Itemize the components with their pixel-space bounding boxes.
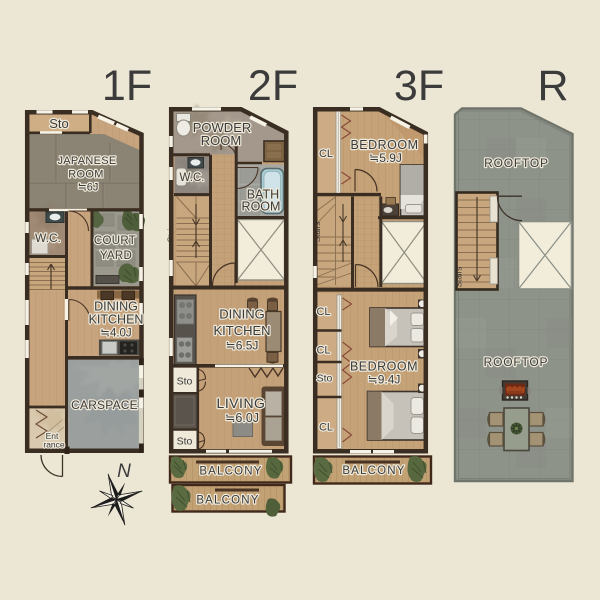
svg-text:LIVING: LIVING [217,395,266,411]
svg-text:CL: CL [319,148,333,160]
svg-text:KITCHEN: KITCHEN [89,313,144,327]
svg-text:1F: 1F [102,62,152,110]
svg-text:DINING: DINING [219,307,265,322]
svg-text:N: N [117,461,131,482]
svg-text:Sto: Sto [317,373,333,385]
svg-text:ROOM: ROOM [201,133,241,148]
svg-text:W.C.: W.C. [180,172,205,184]
svg-text:Sto: Sto [49,116,69,131]
svg-text:Sto: Sto [177,436,193,448]
svg-text:rance: rance [43,440,65,450]
svg-text:≒6.0J: ≒6.0J [225,411,259,425]
svg-text:DINING: DINING [94,300,138,314]
svg-text:R: R [537,62,568,110]
svg-text:≒9.4J: ≒9.4J [368,373,401,387]
svg-text:2F: 2F [248,62,298,110]
svg-text:3F: 3F [394,62,444,110]
svg-text:≒6J: ≒6J [78,182,99,194]
svg-text:JAPANESE: JAPANESE [57,155,116,167]
svg-text:ROOM: ROOM [68,169,103,181]
svg-text:BALCONY: BALCONY [196,495,259,507]
svg-text:BALCONY: BALCONY [342,465,405,477]
svg-text:BEDROOM: BEDROOM [350,360,418,374]
svg-text:COURT: COURT [94,235,136,247]
svg-text:ROOFTOP: ROOFTOP [484,355,549,369]
svg-text:YARD: YARD [100,250,132,262]
svg-text:ROOFTOP: ROOFTOP [484,156,549,170]
svg-text:CL: CL [316,345,330,357]
svg-text:BEDROOM: BEDROOM [350,138,418,152]
svg-text:ROOM: ROOM [242,200,281,214]
svg-text:CARSPACE: CARSPACE [71,398,138,412]
svg-text:Sto: Sto [177,376,193,388]
svg-text:KITCHEN: KITCHEN [213,323,270,338]
svg-text:≒6.5J: ≒6.5J [226,339,259,353]
svg-text:CL: CL [316,306,330,318]
svg-text:≒4.0J: ≒4.0J [100,328,131,340]
svg-text:≒5.9J: ≒5.9J [369,151,402,165]
svg-text:W.C.: W.C. [35,231,61,245]
svg-text:CL: CL [319,422,333,434]
svg-text:BALCONY: BALCONY [199,466,262,478]
svg-text:Stairs: Stairs [455,267,464,287]
